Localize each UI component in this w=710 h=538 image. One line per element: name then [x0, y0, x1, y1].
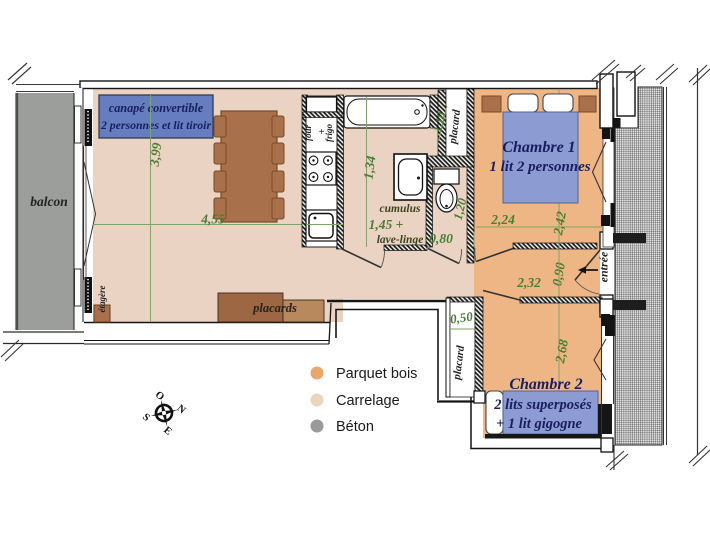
svg-text:2 lits superposés: 2 lits superposés: [493, 397, 592, 413]
svg-text:2,24: 2,24: [490, 212, 515, 227]
svg-text:4,55: 4,55: [200, 212, 225, 227]
svg-text:lave-linge: lave-linge: [377, 234, 424, 246]
svg-text:Chambre 2: Chambre 2: [509, 376, 582, 393]
svg-text:1 lit 2 personnes: 1 lit 2 personnes: [489, 159, 590, 175]
svg-text:E: E: [161, 425, 173, 438]
svg-text:0,50: 0,50: [449, 308, 474, 326]
svg-text:frigo: frigo: [324, 124, 334, 143]
svg-text:O: O: [153, 389, 166, 403]
svg-text:S: S: [140, 412, 152, 424]
svg-text:Parquet bois: Parquet bois: [336, 366, 417, 382]
svg-text:1,45 +: 1,45 +: [369, 217, 404, 232]
svg-text:0,80: 0,80: [429, 231, 453, 246]
svg-text:3,99: 3,99: [147, 142, 165, 169]
svg-text:four: four: [303, 125, 313, 142]
svg-text:2 personnes et lit tiroir: 2 personnes et lit tiroir: [100, 118, 212, 132]
svg-text:+ 1 lit gigogne: + 1 lit gigogne: [496, 416, 583, 432]
svg-text:placards: placards: [252, 301, 297, 315]
svg-text:2,32: 2,32: [516, 275, 541, 290]
svg-text:cumulus: cumulus: [380, 203, 421, 215]
svg-text:étagère: étagère: [97, 286, 107, 313]
svg-text:Carrelage: Carrelage: [336, 393, 400, 409]
svg-text:Béton: Béton: [336, 419, 374, 435]
svg-text:1,34: 1,34: [361, 155, 379, 181]
svg-text:Chambre 1: Chambre 1: [502, 139, 575, 156]
svg-text:N: N: [174, 403, 187, 417]
svg-text:entrée: entrée: [597, 251, 611, 282]
svg-text:balcon: balcon: [30, 194, 68, 209]
svg-text:canapé convertible: canapé convertible: [109, 101, 204, 115]
